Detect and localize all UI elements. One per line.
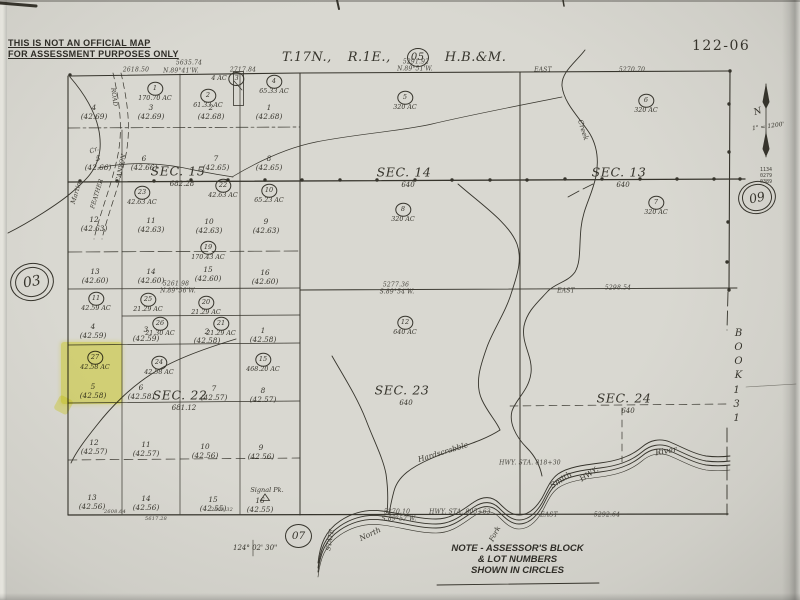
- parcel-number: 12: [81, 438, 108, 447]
- adjacent-map-ref-right-number: 09: [740, 182, 774, 214]
- lot-badge: 1170.70 AC: [138, 76, 171, 103]
- parcel-value: (42.57): [81, 447, 108, 456]
- parcel-label: 14(42.56): [133, 494, 160, 512]
- section-label: SEC. 22: [153, 388, 208, 403]
- parcel-number: 2: [198, 103, 225, 112]
- parcel-number: 11: [138, 216, 165, 225]
- survey-text: 5298.54: [605, 285, 631, 292]
- highlighted-parcel-marker: [61, 342, 122, 404]
- parcel-value: (42.56): [133, 503, 160, 512]
- lot-badge: 2242.63 AC: [208, 173, 237, 200]
- feature-label-hwy-: HWY.: [578, 465, 600, 484]
- parcel-label: 9(42.56): [248, 443, 275, 461]
- lot-circle: 2: [200, 88, 216, 102]
- section-label: SEC. 23: [375, 383, 430, 398]
- parcel-number: 13: [79, 493, 106, 502]
- parcel-value: (42.56): [79, 502, 106, 511]
- parcel-number: 3: [133, 325, 160, 334]
- parcel-value: (42.60): [138, 276, 165, 285]
- parcel-number: 7: [203, 154, 230, 163]
- map-labels-layer: 1170.70 AC261.33 AC4 AC3465.33 AC5320 AC…: [0, 0, 800, 600]
- lot-circle: 12: [397, 315, 413, 329]
- lot-circle: 7: [648, 195, 664, 209]
- feature-label-feather: FEATHER: [89, 178, 105, 209]
- township-label: T.17N.,: [282, 50, 332, 65]
- feature-label-state: STATE: [324, 529, 336, 552]
- parcel-value: (42.60): [82, 276, 109, 285]
- parcel-value: (42.65): [203, 163, 230, 172]
- parcel-value: (42.65): [256, 163, 283, 172]
- lot-circle: 25: [140, 292, 156, 306]
- parcel-label: 1(42.58): [250, 326, 277, 344]
- lot-circle: 6: [638, 93, 654, 107]
- parcel-number: 4: [80, 322, 107, 331]
- parcel-number: 12: [81, 215, 108, 224]
- parcel-label: 11(42.63): [138, 216, 165, 234]
- parcel-number: 2: [194, 327, 221, 336]
- parcel-label: 9(42.63): [253, 217, 280, 235]
- parcel-value: (42.60): [252, 277, 279, 286]
- parcel-value: (42.63): [138, 225, 165, 234]
- parcel-number: 16: [252, 268, 279, 277]
- parcel-label: 10(42.63): [196, 217, 223, 235]
- parcel-value: (42.59): [80, 331, 107, 340]
- parcel-label: 2(42.58): [194, 327, 221, 345]
- lot-acreage: 320 AC: [634, 107, 657, 114]
- lot-circle: 5: [397, 90, 413, 104]
- book-word-label: BOOK: [733, 328, 744, 384]
- parcel-label: 8(42.57): [250, 386, 277, 404]
- lot-acreage: 42.59 AC: [81, 305, 110, 312]
- feature-label-hardscrabble: Hardscrabble: [417, 440, 469, 464]
- lot-badge: 15468.20 AC: [246, 347, 279, 374]
- survey-text: HWY. STA. 805+63: [429, 509, 491, 516]
- feature-label-road: ROAD: [109, 87, 118, 106]
- lot-acreage: 170.70 AC: [138, 95, 171, 102]
- parcel-label: 12(42.63): [81, 215, 108, 233]
- survey-text: 5292.64: [594, 512, 620, 519]
- lot-circle: 22: [215, 178, 231, 192]
- survey-text: 2608.64: [104, 509, 126, 515]
- lot-acreage: 65.23 AC: [254, 197, 283, 204]
- parcel-label: 10(42.56): [192, 442, 219, 460]
- survey-text: 5277.36: [383, 282, 409, 289]
- parcel-label: 4(42.59): [80, 322, 107, 340]
- lot-acreage: 320 AC: [391, 216, 414, 223]
- survey-text: S.89°54'W.: [380, 289, 415, 296]
- survey-text: 5270.10: [384, 509, 410, 516]
- parcel-label: 13(42.56): [79, 493, 106, 511]
- parcel-value: (42.58): [250, 335, 277, 344]
- survey-text: HWY. STA. 818+30: [499, 460, 561, 467]
- feature-label-canyon: CANYON: [115, 153, 128, 182]
- lot-acreage: 320 AC: [644, 209, 667, 216]
- lot-badge: 1142.59 AC: [81, 286, 110, 313]
- lot-badge: 6320 AC: [634, 88, 657, 115]
- lot-circle: 11: [88, 291, 104, 305]
- lot-acreage: 42.63 AC: [127, 199, 156, 206]
- parcel-label: 6(42.58): [128, 383, 155, 401]
- section-acreage: 640: [399, 399, 412, 407]
- survey-text: 2717.84: [230, 67, 256, 74]
- parcel-label: 13(42.60): [82, 267, 109, 285]
- lot-acreage: 468.20 AC: [246, 366, 279, 373]
- note-line-3: SHOWN IN CIRCLES: [430, 565, 605, 576]
- survey-text: EAST: [534, 67, 552, 74]
- survey-text: N.89°41'W.: [163, 68, 199, 75]
- assessor-note: NOTE - ASSESSOR'S BLOCK & LOT NUMBERS SH…: [430, 543, 605, 576]
- lot-acreage: 4 AC: [211, 76, 226, 83]
- parcel-label: 15(42.60): [195, 265, 222, 283]
- parcel-number: 5: [85, 154, 112, 163]
- lot-badge: 2342.63 AC: [127, 180, 156, 207]
- parcel-number: 13: [82, 267, 109, 276]
- parcel-number: 8: [250, 386, 277, 395]
- note-line-2: & LOT NUMBERS: [430, 554, 605, 565]
- feature-label-fork: Fork: [488, 525, 503, 543]
- lot-acreage: 65.33 AC: [259, 88, 288, 95]
- parcel-label: 12(42.57): [81, 438, 108, 456]
- parcel-number: 4: [81, 103, 108, 112]
- survey-text: 5635.74: [176, 60, 202, 67]
- lot-badge: 8320 AC: [391, 197, 414, 224]
- disclaimer-line-1: THIS IS NOT AN OFFICIAL MAP: [8, 38, 179, 49]
- lot-acreage: 170.43 AC: [191, 254, 224, 261]
- survey-text: EAST: [540, 512, 558, 519]
- parcel-label: 7(42.65): [203, 154, 230, 172]
- parcel-value: (42.68): [198, 112, 225, 121]
- survey-text: N.89°56'W.: [160, 288, 196, 295]
- parcel-value: (42.69): [81, 112, 108, 121]
- parcel-label: 16(42.55): [247, 496, 274, 514]
- parcel-value: (42.60): [195, 274, 222, 283]
- lot-circle: 4: [266, 74, 282, 88]
- survey-text: 5270.70: [619, 67, 645, 74]
- lot-circle: 10: [261, 183, 277, 197]
- township-title: T.17N., R.1E., 05 H.B.&M.: [282, 48, 506, 67]
- parcel-label: 2(42.68): [198, 103, 225, 121]
- parcel-number: 15: [195, 265, 222, 274]
- feature-label-creek: Creek: [576, 119, 590, 142]
- parcel-label: 5(42.66): [85, 154, 112, 172]
- lot-acreage: 640 AC: [393, 329, 416, 336]
- lot-circle: 1: [147, 81, 163, 95]
- lot-circle: 23: [134, 185, 150, 199]
- parcel-value: (42.63): [253, 226, 280, 235]
- survey-text: 2608.32: [211, 507, 233, 513]
- parcel-label: 16(42.60): [252, 268, 279, 286]
- parcel-number: 10: [196, 217, 223, 226]
- lot-circle: 19: [200, 240, 216, 254]
- feature-label-smith: Smith: [548, 470, 573, 491]
- parcel-number: 14: [133, 494, 160, 503]
- lot-badge: 2521.29 AC: [133, 287, 162, 314]
- parcel-number: 14: [138, 267, 165, 276]
- feature-label-martin: Martin: [69, 181, 83, 205]
- section-acreage: 681.12: [172, 404, 197, 412]
- section-acreage: 640: [621, 407, 634, 415]
- parcel-number: 6: [128, 383, 155, 392]
- lot-badge: 7320 AC: [644, 190, 667, 217]
- lot-badge: 465.33 AC: [259, 69, 288, 96]
- section-label: SEC. 13: [592, 165, 647, 180]
- parcel-number: 10: [192, 442, 219, 451]
- parcel-value: (42.58): [194, 336, 221, 345]
- survey-text: S.89°52'W.: [382, 516, 417, 523]
- parcel-label: 11(42.57): [133, 440, 160, 458]
- meridian-code-circle: 05: [407, 48, 429, 67]
- book-number-label: 131: [731, 385, 742, 427]
- section-label: SEC. 24: [597, 391, 652, 406]
- parcel-number: 6: [131, 154, 158, 163]
- lot-acreage: 42.63 AC: [208, 192, 237, 199]
- lot-badge: 5320 AC: [393, 85, 416, 112]
- map-number: 122-06: [692, 38, 750, 54]
- lot-circle: 3: [229, 72, 245, 86]
- disclaimer: THIS IS NOT AN OFFICIAL MAP FOR ASSESSME…: [8, 38, 179, 60]
- feature-label-signal-pk-: Signal Pk.: [250, 486, 283, 494]
- parcel-number: 1: [256, 103, 283, 112]
- parcel-number: 1: [250, 326, 277, 335]
- parcel-value: (42.59): [133, 334, 160, 343]
- section-label: SEC. 15: [151, 164, 206, 179]
- note-line-1: NOTE - ASSESSOR'S BLOCK: [430, 543, 605, 554]
- parcel-value: (42.57): [250, 395, 277, 404]
- survey-text: 5617.28: [145, 516, 167, 522]
- range-label: R.1E.,: [348, 50, 391, 65]
- survey-text: 5261.98: [163, 281, 189, 288]
- parcel-number: 9: [248, 443, 275, 452]
- section-acreage: 640: [401, 181, 414, 189]
- lot-badge: 12640 AC: [393, 310, 416, 337]
- parcel-label: 3(42.69): [138, 103, 165, 121]
- parcel-number: 9: [253, 217, 280, 226]
- parcel-value: (42.66): [85, 163, 112, 172]
- parcel-label: 3(42.59): [133, 325, 160, 343]
- feature-label-river: River: [655, 445, 678, 458]
- lot-acreage: 42.58 AC: [144, 369, 173, 376]
- parcel-value: (42.57): [133, 449, 160, 458]
- lot-badge: 2442.58 AC: [144, 350, 173, 377]
- survey-text: EAST: [557, 288, 575, 295]
- survey-text: 2618.50: [123, 67, 149, 74]
- parcel-value: (42.58): [128, 392, 155, 401]
- parcel-number: 15: [200, 495, 227, 504]
- section-label: SEC. 14: [377, 165, 432, 180]
- parcel-label: 1(42.68): [256, 103, 283, 121]
- lot-circle: 8: [395, 202, 411, 216]
- lot-badge: 1065.23 AC: [254, 178, 283, 205]
- lot-acreage: 320 AC: [393, 104, 416, 111]
- lot-circle: 15: [255, 352, 271, 366]
- parcel-value: (42.68): [256, 112, 283, 121]
- section-acreage: 682.28: [170, 180, 195, 188]
- lot-circle: 24: [151, 355, 167, 369]
- lot-badge: 19170.43 AC: [191, 235, 224, 262]
- parcel-number: 3: [138, 103, 165, 112]
- parcel-value: (42.63): [196, 226, 223, 235]
- adjacent-map-ref-left-number: 03: [13, 264, 52, 300]
- parcel-number: 8: [256, 154, 283, 163]
- parcel-value: (42.69): [138, 112, 165, 121]
- parcel-number: 11: [133, 440, 160, 449]
- feature-label-north: North: [358, 525, 382, 543]
- meridian-label: H.B.&M.: [445, 50, 507, 65]
- parcel-value: (42.56): [192, 451, 219, 460]
- section-acreage: 640: [616, 181, 629, 189]
- longitude-label: 124° 02' 30": [233, 544, 277, 552]
- disclaimer-line-2: FOR ASSESSMENT PURPOSES ONLY: [8, 49, 179, 60]
- assessor-plat-map-page: 1170.70 AC261.33 AC4 AC3465.33 AC5320 AC…: [0, 0, 800, 600]
- parcel-label: 14(42.60): [138, 267, 165, 285]
- parcel-number: 16: [247, 496, 274, 505]
- parcel-value: (42.55): [247, 505, 274, 514]
- parcel-value: (42.63): [81, 224, 108, 233]
- parcel-value: (42.56): [248, 452, 275, 461]
- lot-badge: 4 AC3: [211, 72, 244, 86]
- parcel-label: 4(42.69): [81, 103, 108, 121]
- lot-circle: 20: [198, 295, 214, 309]
- parcel-label: 8(42.65): [256, 154, 283, 172]
- adjacent-map-ref-bottom: 07: [285, 524, 312, 548]
